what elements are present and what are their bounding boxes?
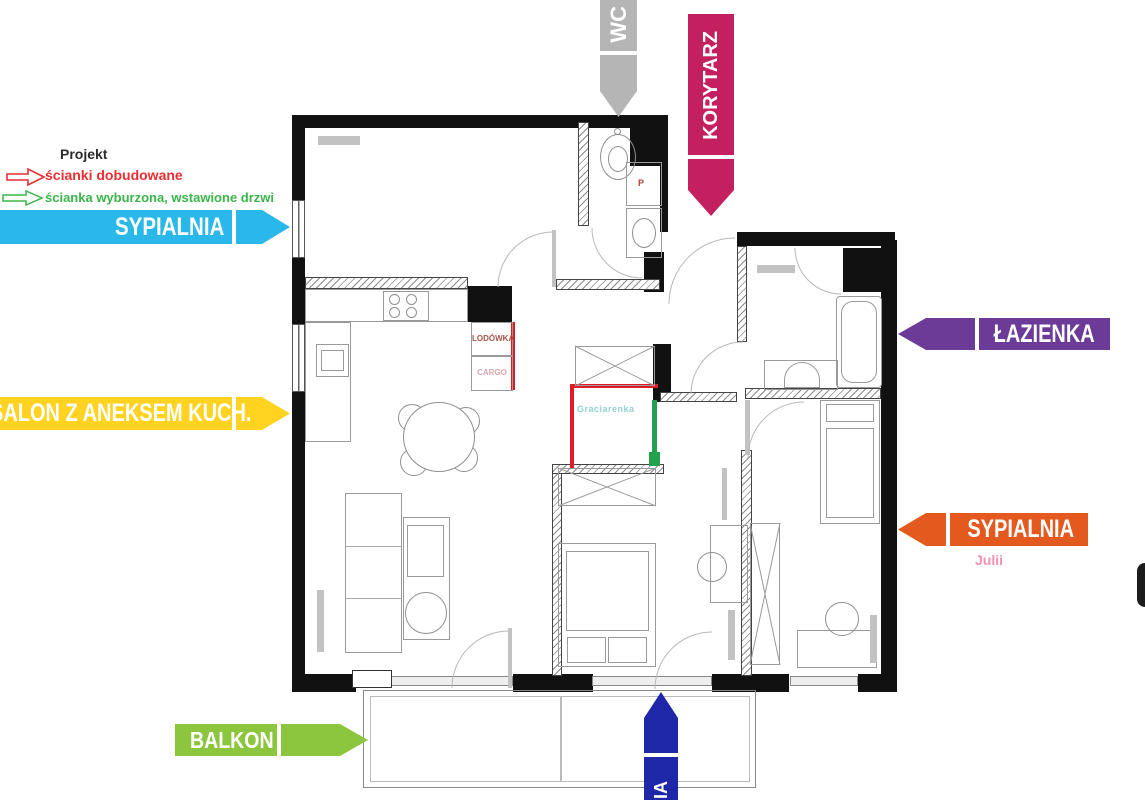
chair (697, 552, 727, 582)
hatched-wall (578, 122, 589, 226)
bed-mattress (826, 428, 874, 518)
room-banner-sypialnia-right: SYPIALNIA (898, 513, 1088, 546)
hatched-wall (660, 392, 737, 402)
wall-segment (292, 390, 305, 676)
sofa-cushion-line (346, 598, 401, 599)
wardrobe (558, 468, 656, 506)
banner-separator (975, 318, 979, 350)
dining-table (403, 402, 475, 472)
sofa-cushion-line (346, 546, 401, 547)
wall-segment (292, 256, 305, 324)
banner-separator (600, 51, 637, 55)
burner (406, 307, 417, 318)
window (390, 676, 513, 686)
hatched-wall (556, 279, 660, 290)
added-wall-line (570, 384, 574, 468)
room-banner-korytarz-label: KORYTARZ (700, 31, 723, 140)
bed-pillow (608, 637, 647, 663)
fridge-block (468, 286, 512, 322)
room-banner-korytarz: KORYTARZ (688, 14, 734, 216)
window (592, 676, 712, 686)
room-banner-sypialnia-bottom-label: SYPIALNIA (651, 781, 672, 800)
banner-separator (232, 210, 236, 244)
room-banner-sypialnia-right-sublabel: Julii (975, 552, 1003, 568)
room-banner-balkon-label: BALKON (190, 727, 274, 754)
green-outline-arrow-icon (1, 189, 45, 207)
hatched-wall (305, 277, 468, 289)
burner (389, 294, 400, 305)
burner (389, 307, 400, 318)
radiator (757, 265, 795, 273)
room-banner-lazienka-label: ŁAZIENKA (994, 320, 1095, 349)
radiator (870, 615, 877, 663)
floor-plan-page: Projekt ścianki dobudowane ścianka wybur… (0, 0, 1145, 800)
red-outline-arrow-icon (5, 167, 47, 187)
bathtub-inner (841, 301, 877, 383)
toilet-flush (614, 128, 621, 135)
fridge-label: LODÓWKA (472, 334, 512, 343)
room-banner-wc-label: WC (606, 6, 632, 43)
room-banner-sypialnia-left-label: SYPIALNIA (115, 213, 224, 242)
wardrobe (750, 523, 780, 665)
room-banner-sypialnia-right-label: SYPIALNIA (968, 515, 1075, 544)
wall-segment (881, 240, 897, 690)
balcony-divider (560, 696, 562, 782)
edge-artifact (1137, 563, 1145, 607)
wall-segment (292, 674, 356, 692)
door-leaf (552, 230, 556, 287)
wc-sink-basin (632, 218, 656, 248)
burner (406, 294, 417, 305)
wall-segment (292, 115, 668, 128)
window (292, 200, 305, 258)
wall-segment (292, 115, 305, 200)
radiator (318, 136, 360, 145)
legend-item-added-walls: ścianki dobudowane (45, 167, 183, 183)
radiator (728, 610, 735, 660)
green-arrow-path (3, 191, 42, 205)
storage-room-label: Graciarenka (577, 404, 635, 414)
kitchen-sink-basin (321, 350, 344, 371)
room-banner-lazienka: ŁAZIENKA (898, 318, 1110, 350)
door-leaf (722, 468, 727, 520)
radiator (317, 590, 324, 652)
room-banner-sypialnia-left: SYPIALNIA (0, 210, 290, 244)
wall-segment (737, 232, 895, 246)
door-leaf (745, 400, 750, 455)
banner-separator (644, 753, 678, 757)
banner-separator (688, 155, 734, 159)
coffee-table-top (407, 525, 444, 577)
kitchen-counter (305, 322, 351, 442)
legend-item-removed-wall: ścianka wyburzona, wstawione drzwi (45, 190, 274, 205)
hatched-wall (737, 246, 747, 342)
toilet-bowl (608, 146, 628, 172)
banner-separator (232, 397, 236, 430)
window (292, 324, 305, 392)
legend-title: Projekt (60, 146, 107, 162)
desk (797, 630, 877, 668)
wardrobe (575, 346, 655, 386)
room-banner-wc: WC (600, 0, 637, 117)
red-arrow-path (7, 169, 44, 185)
room-banner-salon-label: SALON Z ANEKSEM KUCH. (0, 399, 251, 428)
banner-separator (277, 724, 281, 756)
room-banner-salon: SALON Z ANEKSEM KUCH. (0, 397, 290, 430)
door-leaf (508, 628, 512, 688)
removed-wall-door-line (649, 452, 660, 466)
chair (825, 602, 859, 636)
bed-mattress (566, 551, 649, 631)
cargo-label: CARGO (472, 368, 512, 377)
wall-segment (858, 674, 897, 692)
room-banner-balkon: BALKON (175, 724, 368, 756)
bed-pillow (567, 637, 606, 663)
sofa (345, 493, 402, 653)
banner-separator (946, 513, 950, 546)
side-table (405, 592, 447, 634)
bed-pillow (826, 404, 874, 422)
wall-niche (352, 670, 392, 688)
window (790, 676, 858, 686)
washer-label: P (638, 178, 644, 188)
